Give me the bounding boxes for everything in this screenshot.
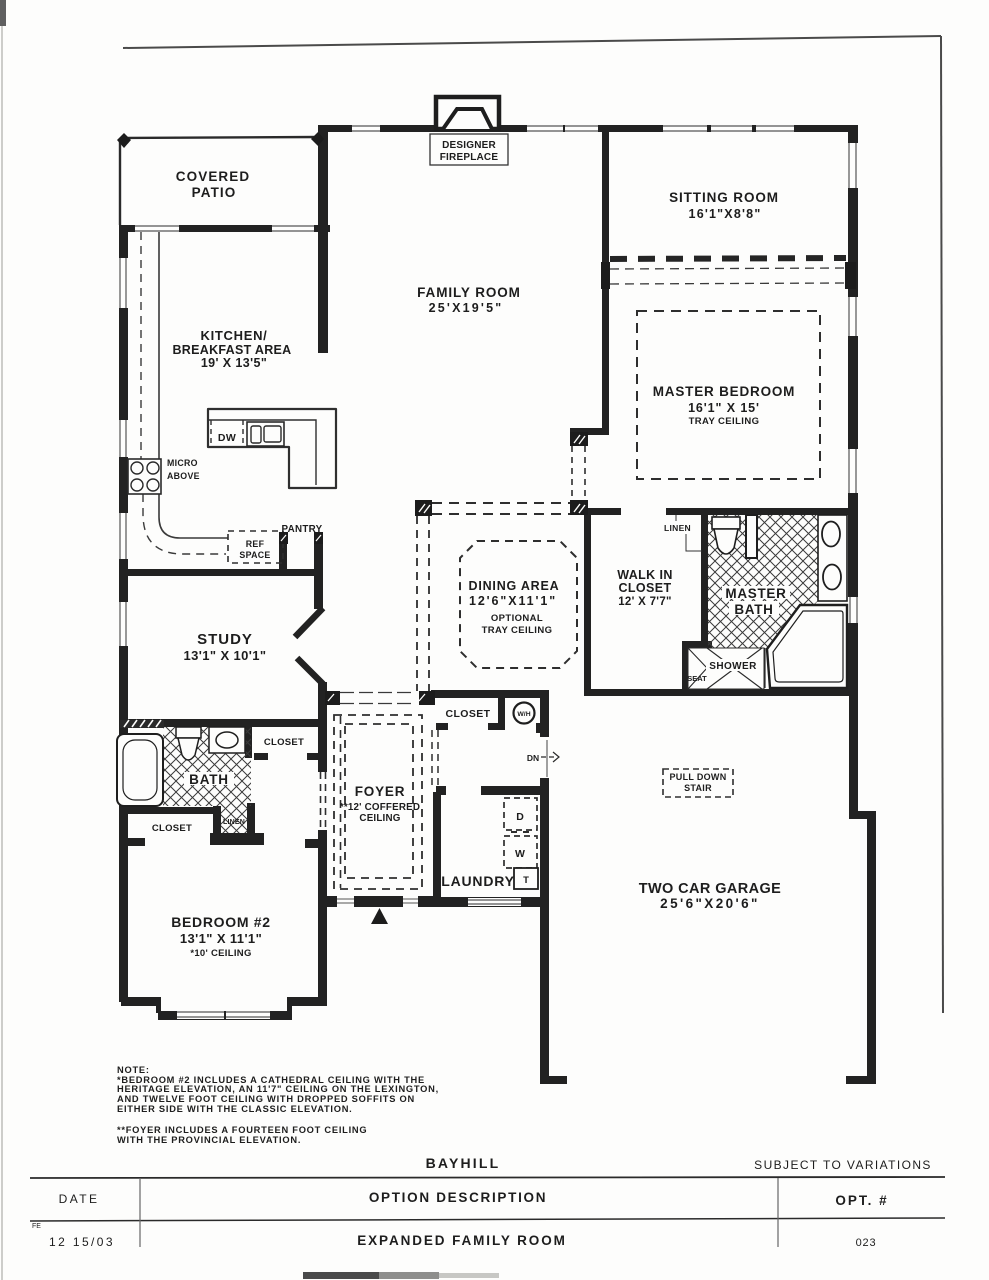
- svg-text:WITH THE PROVINCIAL ELEVATION.: WITH THE PROVINCIAL ELEVATION.: [117, 1135, 301, 1145]
- svg-text:AND TWELVE FOOT CEILING WITH D: AND TWELVE FOOT CEILING WITH DROPPED SOF…: [117, 1094, 415, 1104]
- svg-text:ABOVE: ABOVE: [167, 471, 200, 481]
- svg-text:MASTER: MASTER: [725, 586, 786, 601]
- svg-text:W/H: W/H: [517, 711, 530, 718]
- svg-text:12'6"X11'1": 12'6"X11'1": [469, 594, 557, 608]
- svg-text:HERITAGE ELEVATION, AN 11'7" C: HERITAGE ELEVATION, AN 11'7" CEILING ON …: [117, 1084, 439, 1094]
- svg-text:DINING AREA: DINING AREA: [469, 579, 560, 593]
- svg-text:CEILING: CEILING: [359, 813, 400, 824]
- svg-text:**FOYER INCLUDES A FOURTEEN FO: **FOYER INCLUDES A FOURTEEN FOOT CEILING: [117, 1125, 367, 1135]
- svg-text:TRAY CEILING: TRAY CEILING: [689, 416, 760, 427]
- svg-text:CLOSET: CLOSET: [618, 581, 671, 595]
- svg-text:16'1" X 15': 16'1" X 15': [688, 401, 760, 415]
- svg-text:SUBJECT TO VARIATIONS: SUBJECT TO VARIATIONS: [754, 1158, 932, 1172]
- svg-text:16'1"X8'8": 16'1"X8'8": [689, 207, 762, 221]
- svg-text:FIREPLACE: FIREPLACE: [440, 152, 499, 163]
- svg-text:STAIR: STAIR: [684, 783, 712, 793]
- svg-text:D: D: [516, 811, 524, 823]
- svg-text:T: T: [523, 875, 529, 886]
- svg-text:LAUNDRY: LAUNDRY: [441, 873, 515, 889]
- svg-text:BATH: BATH: [734, 602, 773, 617]
- svg-text:COVERED: COVERED: [176, 169, 250, 184]
- svg-text:LINEN: LINEN: [664, 523, 691, 533]
- svg-text:BATH: BATH: [189, 772, 229, 787]
- svg-text:19' X 13'5": 19' X 13'5": [201, 356, 267, 370]
- svg-text:12' X 7'7": 12' X 7'7": [618, 596, 672, 608]
- svg-text:023: 023: [856, 1237, 877, 1249]
- svg-text:BREAKFAST AREA: BREAKFAST AREA: [172, 343, 291, 357]
- svg-text:PULL DOWN: PULL DOWN: [669, 772, 726, 782]
- svg-text:TRAY CEILING: TRAY CEILING: [482, 625, 553, 636]
- svg-text:*10' CEILING: *10' CEILING: [190, 948, 251, 959]
- svg-text:OPTION DESCRIPTION: OPTION DESCRIPTION: [369, 1190, 547, 1205]
- svg-text:BEDROOM #2: BEDROOM #2: [171, 914, 271, 930]
- svg-text:DW: DW: [218, 432, 236, 444]
- svg-text:TWO CAR GARAGE: TWO CAR GARAGE: [639, 881, 782, 897]
- svg-text:OPTIONAL: OPTIONAL: [491, 613, 543, 624]
- svg-text:KITCHEN/: KITCHEN/: [201, 328, 268, 343]
- svg-text:12 15/03: 12 15/03: [49, 1235, 115, 1249]
- svg-text:WALK IN: WALK IN: [617, 568, 673, 582]
- svg-text:FAMILY ROOM: FAMILY ROOM: [417, 285, 521, 300]
- svg-text:**12' COFFERED: **12' COFFERED: [340, 802, 420, 813]
- svg-text:SPACE: SPACE: [239, 550, 270, 560]
- svg-text:OPT. #: OPT. #: [835, 1193, 888, 1208]
- svg-text:CLOSET: CLOSET: [264, 737, 304, 748]
- svg-text:DATE: DATE: [59, 1192, 100, 1206]
- svg-text:STUDY: STUDY: [197, 631, 253, 648]
- svg-text:W: W: [515, 848, 525, 860]
- svg-text:EXPANDED FAMILY ROOM: EXPANDED FAMILY ROOM: [357, 1233, 567, 1248]
- svg-text:25'X19'5": 25'X19'5": [429, 301, 504, 315]
- svg-text:SEAT: SEAT: [687, 674, 707, 683]
- svg-text:13'1" X 11'1": 13'1" X 11'1": [180, 931, 262, 946]
- svg-text:PATIO: PATIO: [192, 185, 237, 200]
- svg-text:EITHER SIDE WITH THE CLASSIC E: EITHER SIDE WITH THE CLASSIC ELEVATION.: [117, 1104, 353, 1114]
- svg-text:DN: DN: [527, 753, 539, 763]
- svg-text:FOYER: FOYER: [355, 784, 406, 799]
- svg-text:DESIGNER: DESIGNER: [442, 140, 496, 151]
- svg-text:REF: REF: [246, 539, 265, 549]
- svg-text:MICRO: MICRO: [167, 458, 198, 468]
- svg-text:CLOSET: CLOSET: [152, 823, 192, 834]
- svg-text:25'6"X20'6": 25'6"X20'6": [660, 896, 760, 911]
- svg-text:LINEN: LINEN: [223, 819, 245, 826]
- svg-text:SHOWER: SHOWER: [709, 661, 757, 672]
- svg-text:MASTER BEDROOM: MASTER BEDROOM: [653, 384, 795, 399]
- svg-text:CLOSET: CLOSET: [446, 708, 491, 720]
- svg-text:NOTE:: NOTE:: [117, 1065, 150, 1075]
- svg-text:13'1" X 10'1": 13'1" X 10'1": [184, 648, 267, 663]
- svg-text:BAYHILL: BAYHILL: [426, 1155, 501, 1171]
- svg-text:SITTING ROOM: SITTING ROOM: [669, 190, 779, 205]
- svg-text:FE: FE: [32, 1223, 41, 1230]
